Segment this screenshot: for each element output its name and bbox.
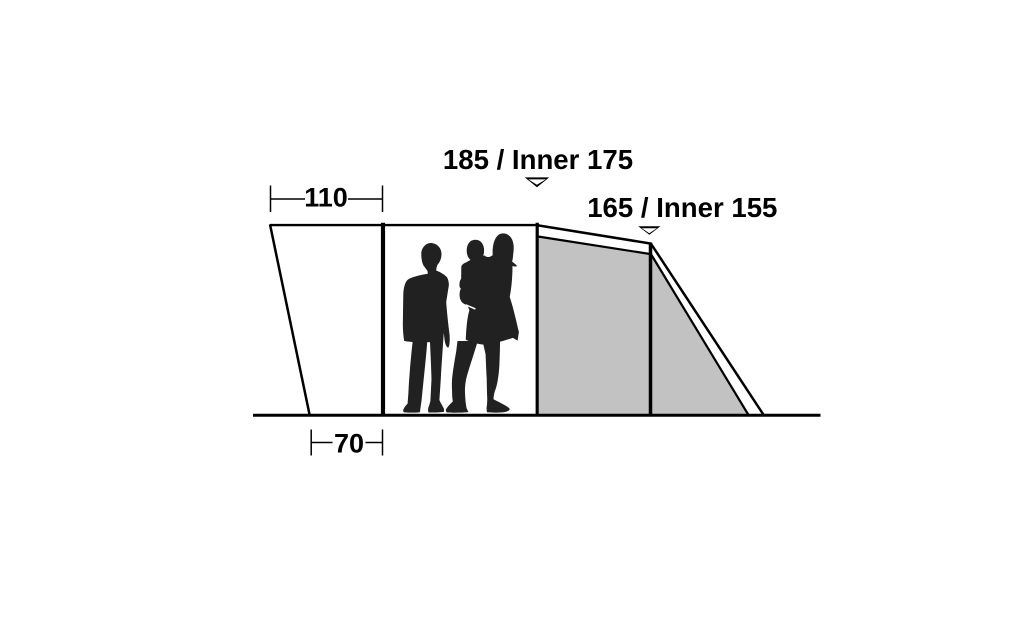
- svg-text:185 / Inner 175: 185 / Inner 175: [443, 144, 633, 175]
- svg-text:165 / Inner 155: 165 / Inner 155: [587, 192, 777, 223]
- svg-text:70: 70: [334, 429, 364, 459]
- svg-text:110: 110: [304, 182, 348, 212]
